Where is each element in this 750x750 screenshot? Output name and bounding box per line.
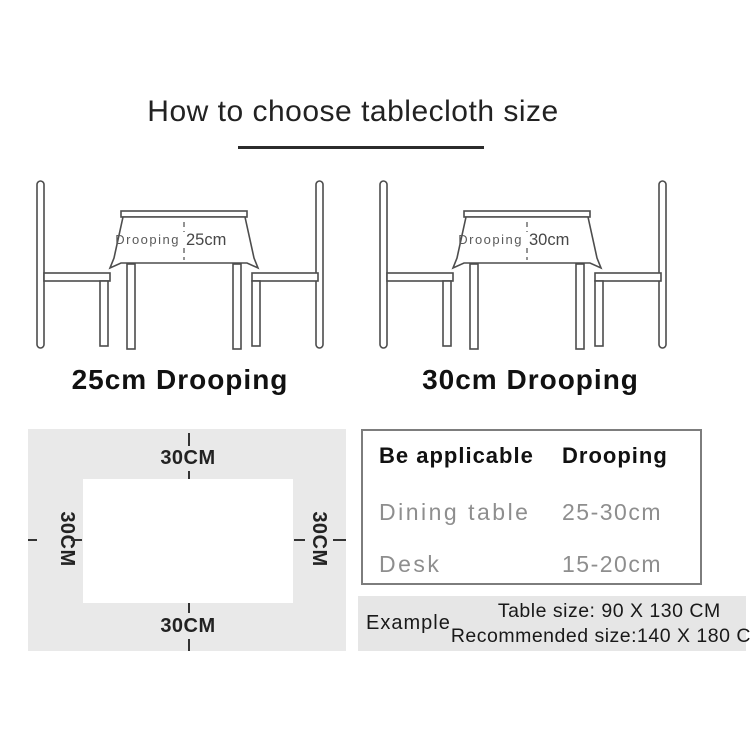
measure-tick bbox=[188, 603, 190, 613]
table-row: Desk 15-20cm bbox=[379, 551, 692, 578]
example-recommended-size: Recommended size:140 X 180 CM bbox=[451, 624, 750, 649]
measure-tick bbox=[188, 471, 190, 479]
left-chair-seat bbox=[387, 273, 453, 281]
example-box: Example Table size: 90 X 130 CM Recommen… bbox=[358, 596, 746, 651]
drooping-value: 25cm bbox=[186, 231, 226, 249]
tablecloth-top-view bbox=[83, 479, 293, 603]
measure-tick bbox=[28, 539, 37, 541]
left-chair-seat bbox=[44, 273, 110, 281]
drooping-size-table: Be applicable Drooping Dining table 25-3… bbox=[361, 429, 702, 585]
measure-tick bbox=[71, 539, 82, 541]
table-row: Dining table 25-30cm bbox=[379, 499, 692, 526]
row-name: Desk bbox=[379, 551, 562, 578]
table-chairs-illustration-30cm: Drooping 30cm bbox=[368, 178, 678, 353]
bottom-measure-label: 30CM bbox=[138, 615, 238, 637]
drooping-value: 30cm bbox=[529, 231, 569, 249]
tabletop-edge bbox=[464, 211, 590, 217]
left-chair-back bbox=[380, 181, 387, 348]
example-label: Example bbox=[358, 612, 451, 635]
measure-tick bbox=[333, 539, 346, 541]
example-table-size: Table size: 90 X 130 CM bbox=[451, 599, 750, 624]
left-chair-leg bbox=[100, 281, 108, 346]
right-chair-leg bbox=[252, 281, 260, 346]
right-chair-back bbox=[659, 181, 666, 348]
caption-30cm-drooping: 30cm Drooping bbox=[368, 364, 693, 396]
page-title: How to choose tablecloth size bbox=[0, 95, 706, 129]
table-header-row: Be applicable Drooping bbox=[379, 443, 692, 469]
caption-25cm-drooping: 25cm Drooping bbox=[25, 364, 335, 396]
tabletop-edge bbox=[121, 211, 247, 217]
drooping-word: Drooping bbox=[115, 232, 180, 247]
left-chair-back bbox=[37, 181, 44, 348]
measure-tick bbox=[188, 639, 190, 651]
overhang-measurement-panel: 30CM 30CM 30CM 30CM bbox=[28, 429, 346, 651]
right-chair-seat bbox=[252, 273, 318, 281]
row-name: Dining table bbox=[379, 499, 562, 526]
left-chair-leg bbox=[443, 281, 451, 346]
table-leg-right bbox=[576, 264, 584, 349]
example-lines: Table size: 90 X 130 CM Recommended size… bbox=[451, 599, 750, 649]
top-measure-label: 30CM bbox=[138, 447, 238, 469]
header-drooping: Drooping bbox=[562, 443, 692, 469]
row-value: 15-20cm bbox=[562, 551, 692, 578]
right-chair-seat bbox=[595, 273, 661, 281]
right-measure-label: 30CM bbox=[308, 499, 330, 579]
drooping-word: Drooping bbox=[458, 232, 523, 247]
right-chair-leg bbox=[595, 281, 603, 346]
table-chairs-illustration-25cm: Drooping 25cm bbox=[25, 178, 335, 353]
right-chair-back bbox=[316, 181, 323, 348]
table-leg-right bbox=[233, 264, 241, 349]
title-underline bbox=[238, 146, 484, 149]
table-leg-left bbox=[127, 264, 135, 349]
header-be-applicable: Be applicable bbox=[379, 443, 562, 469]
measure-tick bbox=[294, 539, 305, 541]
measure-tick bbox=[188, 433, 190, 446]
row-value: 25-30cm bbox=[562, 499, 692, 526]
tablecloth-size-guide: How to choose tablecloth size Drooping 2… bbox=[0, 0, 750, 750]
table-leg-left bbox=[470, 264, 478, 349]
